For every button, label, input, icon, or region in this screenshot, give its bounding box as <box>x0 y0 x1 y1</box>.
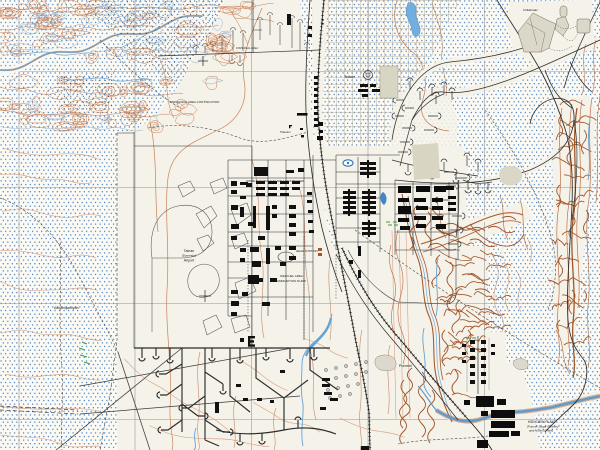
svg-text:Tainan: Tainan <box>344 75 355 79</box>
svg-text:DISPERSAL AREA: DISPERSAL AREA <box>236 46 258 50</box>
svg-text:ORDNANCE AREA CONTINUATION: ORDNANCE AREA CONTINUATION <box>170 100 219 104</box>
svg-text:Pumelei: Pumelei <box>399 364 412 368</box>
svg-text:Airport: Airport <box>184 259 195 263</box>
svg-text:HSINCHEN PLANT: HSINCHEN PLANT <box>528 420 556 424</box>
svg-text:Chikkhaaki: Chikkhaaki <box>523 8 538 12</box>
svg-text:and Alcohol Plant): and Alcohol Plant) <box>529 429 553 433</box>
svg-text:SOME BUILDINGS IN AREA DESTROY: SOME BUILDINGS IN AREA DESTROYED <box>246 179 305 183</box>
svg-text:Tilamam: Tilamam <box>280 130 291 134</box>
svg-text:WEI FUEL AREA: WEI FUEL AREA <box>280 274 303 278</box>
svg-text:Tainan: Tainan <box>184 249 195 253</box>
svg-text:AMMUNITION DUMP: AMMUNITION DUMP <box>277 279 306 283</box>
svg-text:Ashdhiqamiyah: Ashdhiqamiyah <box>54 306 79 310</box>
svg-text:HEAD STATION: HEAD STATION <box>296 249 318 253</box>
svg-text:(Domestic): (Domestic) <box>182 254 197 258</box>
